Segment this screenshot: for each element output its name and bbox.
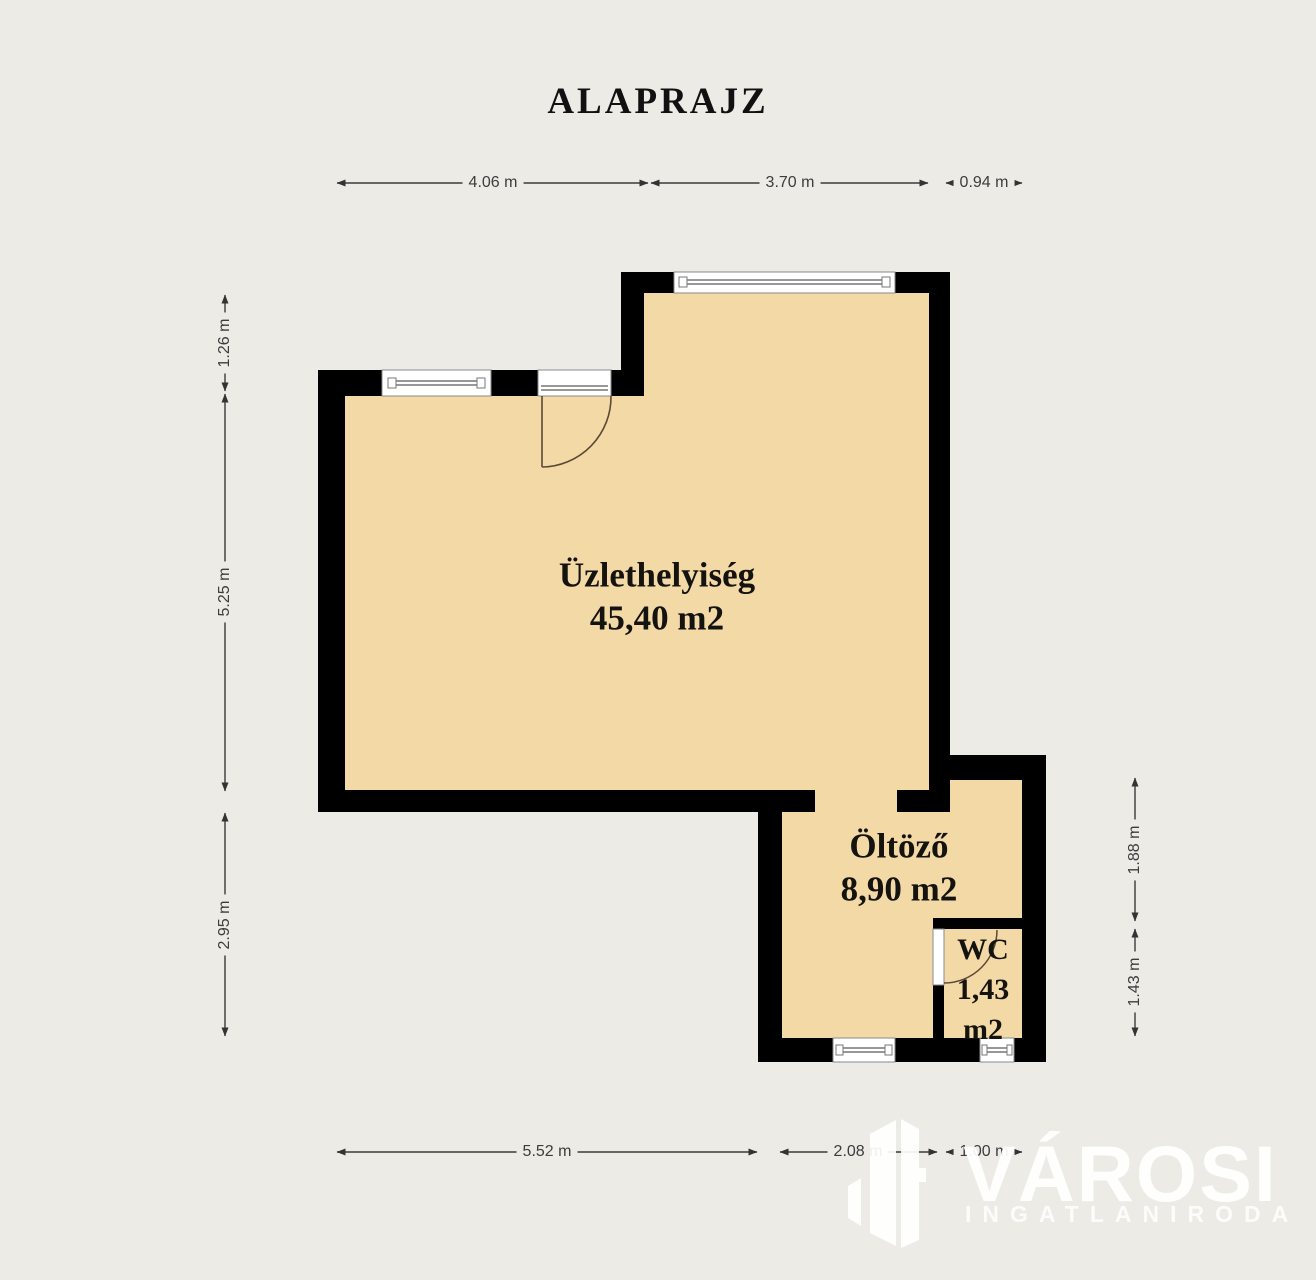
window-icon — [674, 272, 895, 293]
room-name: Üzlethelyiség — [559, 554, 755, 597]
floorplan-canvas — [0, 0, 1316, 1280]
room-area: 8,90 m2 — [841, 868, 958, 911]
room-area: m2 — [957, 1010, 1010, 1050]
dim-left-1: 1.26 m — [216, 313, 234, 374]
floorplan-page: ALAPRAJZ — [0, 0, 1316, 1280]
window-icon — [833, 1038, 895, 1062]
dim-right-2: 1.43 m — [1126, 952, 1144, 1013]
room-name: WC — [957, 930, 1010, 970]
room-label-uzlethelyiseg: Üzlethelyiség 45,40 m2 — [559, 554, 755, 639]
dim-bottom-2: 2.08 m — [828, 1143, 889, 1161]
room-area: 1,43 — [957, 970, 1010, 1010]
dim-right-1: 1.88 m — [1126, 820, 1144, 881]
dim-bottom-1: 5.52 m — [517, 1143, 578, 1161]
dim-left-3: 2.95 m — [216, 895, 234, 956]
dim-left-2: 5.25 m — [216, 562, 234, 623]
room-name: Öltöző — [841, 825, 958, 868]
room-label-oltozo: Öltöző 8,90 m2 — [841, 825, 958, 910]
window-icon — [382, 370, 491, 396]
logo-subtitle: INGATLANIRODA — [965, 1201, 1299, 1228]
room-label-wc: WC 1,43 m2 — [957, 930, 1010, 1050]
dim-top-1: 4.06 m — [463, 174, 524, 192]
dim-top-3: 0.94 m — [954, 174, 1015, 192]
room-area: 45,40 m2 — [559, 597, 755, 640]
dim-top-2: 3.70 m — [760, 174, 821, 192]
